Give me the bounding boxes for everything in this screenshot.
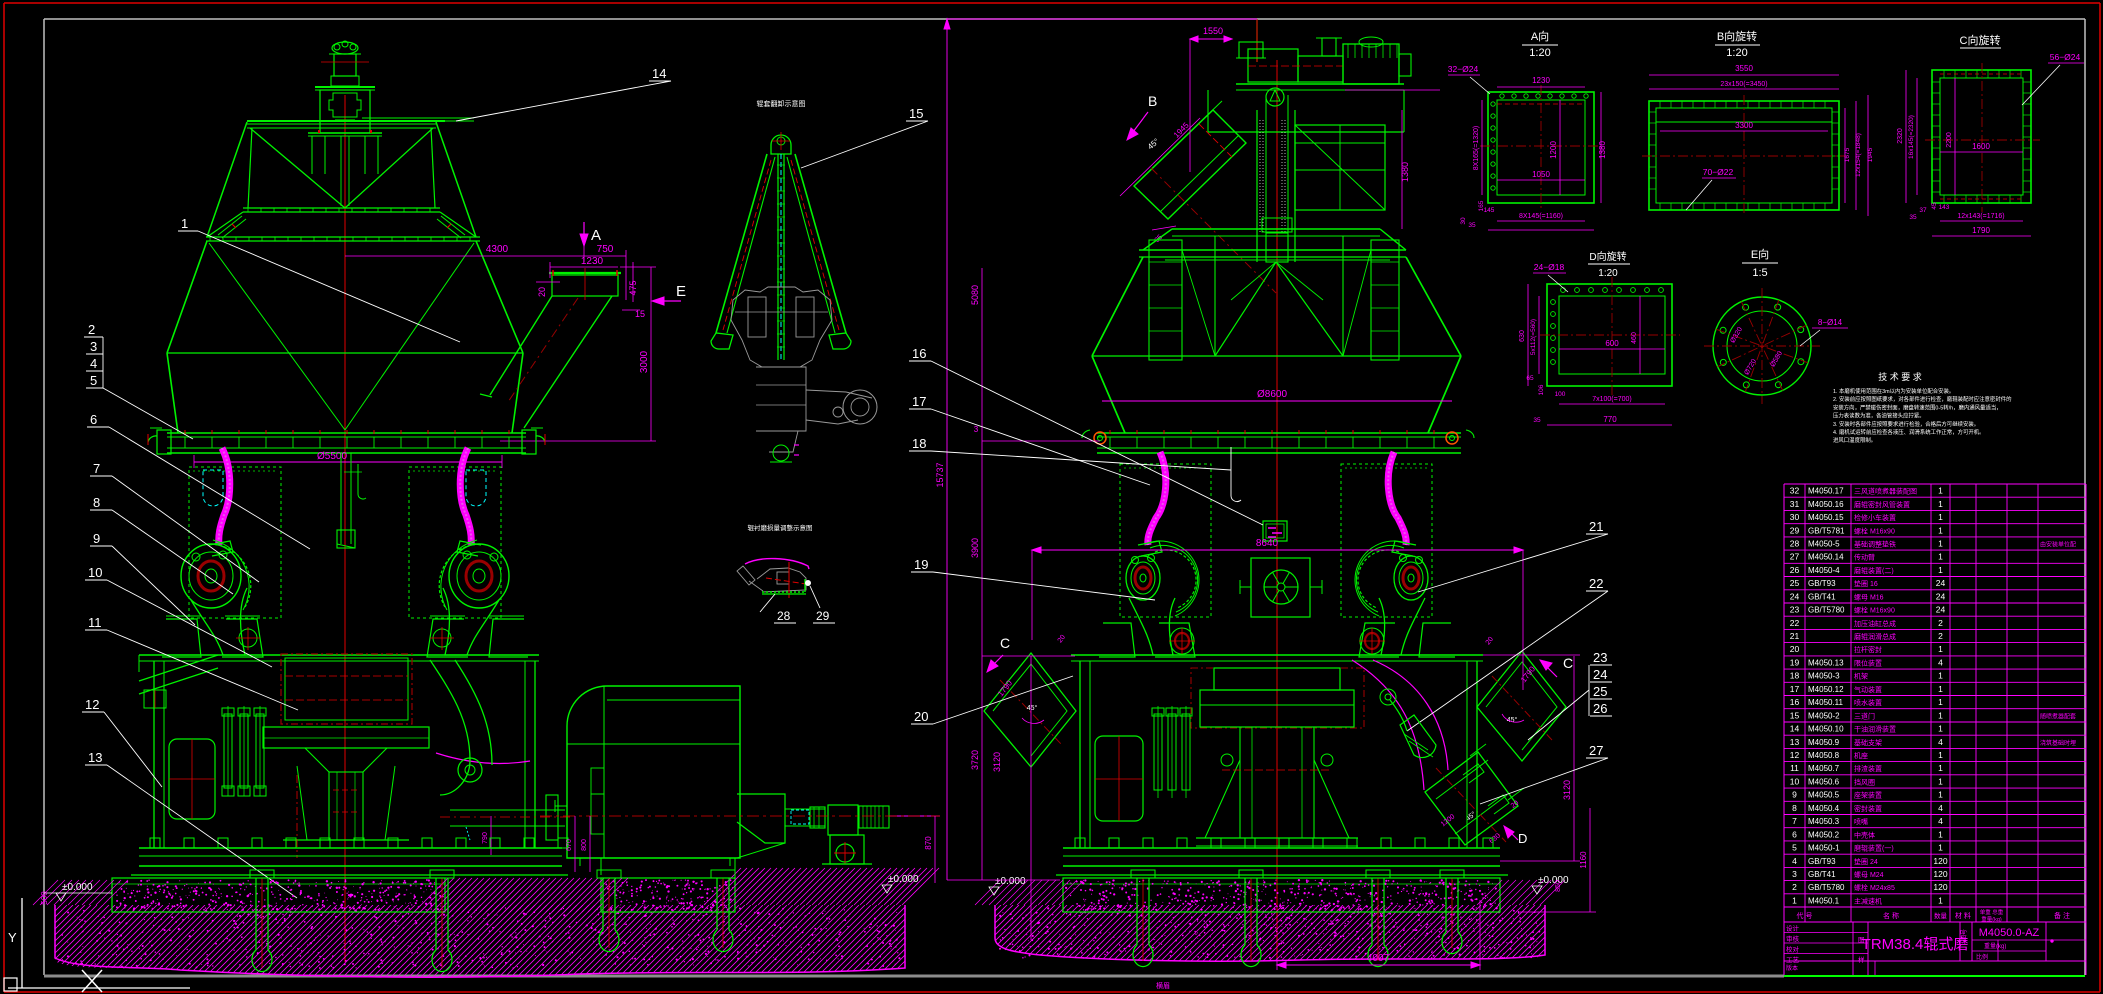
svg-text:20: 20 <box>914 709 928 724</box>
svg-text:拉杆密封: 拉杆密封 <box>1854 645 1882 654</box>
svg-text:45: 45 <box>1931 202 1938 210</box>
svg-text:B向旋转: B向旋转 <box>1717 29 1757 43</box>
svg-text:M4050.12: M4050.12 <box>1808 685 1844 694</box>
svg-text:1: 1 <box>181 216 188 231</box>
svg-text:10: 10 <box>1790 776 1800 786</box>
svg-text:D向旋转: D向旋转 <box>1589 250 1626 263</box>
svg-text:GB/T5780: GB/T5780 <box>1808 606 1845 615</box>
svg-text:磨辊润滑总成: 磨辊润滑总成 <box>1854 632 1896 641</box>
svg-text:24: 24 <box>1936 591 1946 601</box>
svg-text:挡风圈: 挡风圈 <box>1854 777 1875 786</box>
svg-text:3: 3 <box>90 339 97 354</box>
svg-text:4: 4 <box>1938 816 1943 826</box>
svg-text:106: 106 <box>1538 384 1545 395</box>
svg-text:GB/T93: GB/T93 <box>1808 579 1836 588</box>
svg-text:1: 1 <box>1938 486 1943 496</box>
svg-text:M4050.0-AZ: M4050.0-AZ <box>1979 927 2040 939</box>
svg-text:28: 28 <box>777 609 791 623</box>
svg-text:3: 3 <box>974 425 979 434</box>
svg-text:C: C <box>1563 655 1573 671</box>
svg-text:加压油缸总成: 加压油缸总成 <box>1854 619 1896 628</box>
svg-text:8: 8 <box>1792 803 1797 813</box>
svg-text:C: C <box>1000 635 1010 651</box>
svg-text:螺栓 M16x90: 螺栓 M16x90 <box>1854 526 1895 535</box>
svg-text:800: 800 <box>581 839 588 851</box>
svg-text:GB/T5781: GB/T5781 <box>1808 526 1845 535</box>
svg-text:26: 26 <box>1593 701 1607 716</box>
svg-text:3000: 3000 <box>639 350 650 373</box>
svg-text:进风口温度限制。: 进风口温度限制。 <box>1833 436 1876 444</box>
svg-text:4300: 4300 <box>486 244 509 255</box>
svg-text:500: 500 <box>40 891 49 905</box>
svg-text:56−Ø24: 56−Ø24 <box>2050 52 2081 62</box>
svg-text:设计: 设计 <box>1786 924 1800 933</box>
svg-text:23: 23 <box>1790 605 1800 615</box>
svg-text:1380: 1380 <box>1400 162 1410 182</box>
svg-text:30: 30 <box>1790 512 1800 522</box>
svg-text:1: 1 <box>1938 512 1943 522</box>
svg-text:D: D <box>1518 831 1527 846</box>
svg-text:20: 20 <box>537 287 547 297</box>
svg-text:12: 12 <box>85 697 99 712</box>
svg-text:Ø5500: Ø5500 <box>317 451 347 462</box>
svg-text:15: 15 <box>635 309 645 319</box>
svg-text:12x143(=1716): 12x143(=1716) <box>1957 213 2004 220</box>
svg-text:螺栓 M16x90: 螺栓 M16x90 <box>1854 606 1895 615</box>
svg-text:中壳体: 中壳体 <box>1854 830 1875 839</box>
svg-text:35: 35 <box>1468 222 1476 229</box>
svg-text:1790: 1790 <box>1972 226 1990 235</box>
svg-text:喷嘴: 喷嘴 <box>1854 817 1868 826</box>
svg-text:磨辊密封风管装置: 磨辊密封风管装置 <box>1854 500 1910 509</box>
svg-text:143: 143 <box>1939 204 1950 211</box>
svg-text:3120: 3120 <box>992 752 1002 772</box>
svg-text:B: B <box>1148 93 1157 109</box>
svg-text:3: 3 <box>1792 869 1797 879</box>
svg-text:37: 37 <box>1919 207 1927 214</box>
svg-text:代 号: 代 号 <box>1797 911 1813 920</box>
svg-text:3120: 3120 <box>1562 780 1572 800</box>
svg-text:单重 总重: 单重 总重 <box>1980 908 2004 916</box>
svg-text:120: 120 <box>1933 869 1947 879</box>
svg-text:1: 1 <box>1938 499 1943 509</box>
svg-text:2: 2 <box>1938 618 1943 628</box>
svg-text:16: 16 <box>1790 697 1800 707</box>
svg-text:螺栓 M24x85: 螺栓 M24x85 <box>1854 883 1895 892</box>
svg-text:M4050.8: M4050.8 <box>1808 751 1840 760</box>
svg-text:1:5: 1:5 <box>1752 267 1767 279</box>
svg-text:磨辊装置(二): 磨辊装置(二) <box>1854 566 1894 575</box>
svg-text:1: 1 <box>1938 552 1943 562</box>
svg-text:2. 安装前应按照图纸要求，对各部件进行检查，磨辊装配时应注: 2. 安装前应按照图纸要求，对各部件进行检查，磨辊装配时应注意密封件的 <box>1833 395 2012 403</box>
svg-text:1: 1 <box>1938 790 1943 800</box>
svg-text:18: 18 <box>1790 671 1800 681</box>
svg-text:165: 165 <box>1478 200 1485 211</box>
svg-text:5080: 5080 <box>970 285 980 305</box>
svg-text:4: 4 <box>1938 658 1943 668</box>
svg-text:±0.000: ±0.000 <box>995 876 1026 887</box>
svg-text:65: 65 <box>1526 375 1534 382</box>
svg-text:28: 28 <box>1790 539 1800 549</box>
svg-text:1: 1 <box>1938 565 1943 575</box>
svg-text:M4050.15: M4050.15 <box>1808 513 1844 522</box>
svg-text:24: 24 <box>1936 605 1946 615</box>
svg-text:E向: E向 <box>1751 247 1769 261</box>
svg-text:横眉: 横眉 <box>1156 981 1170 990</box>
svg-text:7: 7 <box>93 461 100 476</box>
svg-text:12x154(=1848): 12x154(=1848) <box>1855 133 1862 177</box>
svg-text:1: 1 <box>1938 843 1943 853</box>
svg-text:M4050.11: M4050.11 <box>1808 698 1844 707</box>
svg-text:Ø8600: Ø8600 <box>1257 389 1287 400</box>
svg-text:1:20: 1:20 <box>1726 47 1747 59</box>
svg-text:11: 11 <box>1790 763 1799 773</box>
svg-text:870: 870 <box>924 836 933 850</box>
svg-text:由安装单位配: 由安装单位配 <box>2040 541 2076 549</box>
svg-text:670: 670 <box>566 839 573 851</box>
svg-text:3550: 3550 <box>1735 64 1753 73</box>
svg-text:120: 120 <box>1933 882 1947 892</box>
svg-text:29: 29 <box>1790 525 1800 535</box>
svg-text:32: 32 <box>1790 486 1800 496</box>
svg-text:750: 750 <box>597 244 614 255</box>
svg-text:27: 27 <box>1790 552 1800 562</box>
svg-text:19: 19 <box>914 557 928 572</box>
svg-text:比例: 比例 <box>1976 953 1988 961</box>
svg-text:100: 100 <box>1555 391 1566 398</box>
svg-text:辊套翻卸示意图: 辊套翻卸示意图 <box>757 99 806 108</box>
svg-text:9: 9 <box>93 531 100 546</box>
svg-text:1230: 1230 <box>1532 76 1550 85</box>
svg-text:15: 15 <box>1790 710 1800 720</box>
svg-text:垫圈 24: 垫圈 24 <box>1854 857 1878 866</box>
svg-text:备 注: 备 注 <box>2054 911 2070 920</box>
svg-text:15737: 15737 <box>935 462 945 487</box>
svg-text:21: 21 <box>1589 519 1603 534</box>
svg-text:M4050.17: M4050.17 <box>1808 487 1844 496</box>
svg-text:1945: 1945 <box>1867 147 1874 162</box>
svg-text:M4050.1: M4050.1 <box>1808 896 1840 905</box>
svg-text:1160: 1160 <box>1579 851 1588 869</box>
svg-text:30: 30 <box>1460 217 1467 225</box>
svg-text:1: 1 <box>1938 525 1943 535</box>
svg-text:排渣装置: 排渣装置 <box>1854 764 1882 773</box>
svg-text:25: 25 <box>1593 684 1607 699</box>
svg-text:4. 磨机试运转前应检查各液压、润滑系统工作正常，方可开机。: 4. 磨机试运转前应检查各液压、润滑系统工作正常，方可开机。 <box>1833 428 1985 436</box>
svg-text:工艺: 工艺 <box>1786 956 1800 964</box>
svg-text:1: 1 <box>1938 671 1943 681</box>
svg-text:4: 4 <box>1792 856 1797 866</box>
svg-text:17: 17 <box>912 394 926 409</box>
svg-text:M4050.4: M4050.4 <box>1808 804 1840 813</box>
svg-text:三风道喷煮器装配图: 三风道喷煮器装配图 <box>1854 487 1917 496</box>
svg-text:样: 样 <box>1858 955 1865 964</box>
svg-text:E: E <box>676 283 686 300</box>
svg-text:14: 14 <box>1790 724 1800 734</box>
svg-text:审核: 审核 <box>1786 934 1800 943</box>
svg-text:4: 4 <box>1938 737 1943 747</box>
svg-text:29: 29 <box>816 609 830 623</box>
svg-text:限位装置: 限位装置 <box>1854 659 1882 668</box>
svg-text:M4050-5: M4050-5 <box>1808 540 1840 549</box>
svg-text:1: 1 <box>1938 684 1943 694</box>
svg-text:垫圈 16: 垫圈 16 <box>1854 579 1878 588</box>
svg-text:检修小车装置: 检修小车装置 <box>1854 513 1896 522</box>
svg-text:1: 1 <box>1938 697 1943 707</box>
svg-text:6: 6 <box>90 412 97 427</box>
svg-text:基础支架: 基础支架 <box>1854 738 1882 747</box>
svg-text:45°: 45° <box>1027 704 1038 712</box>
svg-text:M4050.6: M4050.6 <box>1808 777 1840 786</box>
svg-text:1:20: 1:20 <box>1598 268 1618 279</box>
svg-text:辊衬磨损量调整示意图: 辊衬磨损量调整示意图 <box>748 523 813 532</box>
svg-text:M4050.14: M4050.14 <box>1808 553 1844 562</box>
svg-text:M4050.2: M4050.2 <box>1808 830 1840 839</box>
svg-text:基础调整垫铁: 基础调整垫铁 <box>1854 540 1896 549</box>
svg-text:22: 22 <box>1790 618 1800 628</box>
svg-text:4: 4 <box>90 356 97 371</box>
svg-text:1: 1 <box>1938 539 1943 549</box>
svg-text:1: 1 <box>1938 776 1943 786</box>
svg-text:16: 16 <box>912 346 926 361</box>
svg-text:27: 27 <box>1589 743 1603 758</box>
svg-text:13: 13 <box>88 750 102 765</box>
svg-text:8: 8 <box>93 495 100 510</box>
svg-text:2: 2 <box>1938 631 1943 641</box>
svg-text:Y: Y <box>8 930 17 945</box>
svg-text:7: 7 <box>1792 816 1797 826</box>
svg-text:460: 460 <box>1631 332 1638 344</box>
svg-text:TRM38.4辊式磨: TRM38.4辊式磨 <box>1862 936 1969 953</box>
svg-text:13: 13 <box>1790 737 1800 747</box>
svg-text:M4050-2: M4050-2 <box>1808 711 1840 720</box>
svg-text:1: 1 <box>1938 750 1943 760</box>
svg-text:5x112(=560): 5x112(=560) <box>1530 319 1537 355</box>
svg-text:1200: 1200 <box>1549 141 1558 159</box>
svg-text:3900: 3900 <box>970 538 980 558</box>
svg-text:8X165(=1320): 8X165(=1320) <box>1473 126 1480 171</box>
svg-text:GB/T93: GB/T93 <box>1808 857 1836 866</box>
svg-text:传动臂: 传动臂 <box>1854 553 1875 562</box>
svg-text:24−Ø18: 24−Ø18 <box>1534 262 1565 272</box>
svg-text:1: 1 <box>1938 763 1943 773</box>
svg-text:磨辊装置(一): 磨辊装置(一) <box>1854 844 1894 853</box>
svg-text:1. 本磨机使用范围在3m以内为安装单位配合安装。: 1. 本磨机使用范围在3m以内为安装单位配合安装。 <box>1833 387 1954 395</box>
svg-text:A: A <box>591 227 601 244</box>
svg-text:35: 35 <box>1533 417 1541 424</box>
svg-text:1: 1 <box>1938 710 1943 720</box>
svg-text:GB/T41: GB/T41 <box>1808 592 1836 601</box>
svg-text:25: 25 <box>1790 578 1800 588</box>
svg-text:8640: 8640 <box>1256 538 1279 549</box>
svg-text:120: 120 <box>1933 856 1947 866</box>
svg-text:螺母 M24: 螺母 M24 <box>1854 870 1884 879</box>
svg-text:7x100(=700): 7x100(=700) <box>1592 396 1632 403</box>
svg-text:2: 2 <box>1792 882 1797 892</box>
svg-text:770: 770 <box>1603 415 1617 424</box>
svg-text:±0.000: ±0.000 <box>888 874 919 885</box>
svg-text:24: 24 <box>1936 578 1946 588</box>
svg-text:16x145(=2320): 16x145(=2320) <box>1908 115 1915 159</box>
svg-text:26: 26 <box>1790 565 1800 575</box>
svg-text:21: 21 <box>1790 631 1800 641</box>
svg-text:2320: 2320 <box>1897 128 1904 144</box>
svg-text:10: 10 <box>88 565 102 580</box>
svg-text:M4050-3: M4050-3 <box>1808 672 1840 681</box>
svg-text:干油润滑装置: 干油润滑装置 <box>1854 725 1896 734</box>
svg-text:主减速机: 主减速机 <box>1854 896 1882 905</box>
svg-text:4: 4 <box>1938 803 1943 813</box>
svg-text:技 术 要 求: 技 术 要 求 <box>1878 371 1922 382</box>
svg-text:浇筑基础时埋: 浇筑基础时埋 <box>2040 739 2076 747</box>
svg-text:±0.000: ±0.000 <box>62 882 93 893</box>
svg-text:1600: 1600 <box>1972 142 1990 151</box>
svg-text:安装方向，严禁碰伤密封面，磨盘转速范围0-5转/h，磨内通风: 安装方向，严禁碰伤密封面，磨盘转速范围0-5转/h，磨内通风量适当， <box>1833 403 2002 411</box>
svg-text:材 料: 材 料 <box>1955 911 1971 920</box>
svg-text:M4050.3: M4050.3 <box>1808 817 1840 826</box>
svg-text:密封装置: 密封装置 <box>1854 804 1882 813</box>
svg-text:15: 15 <box>909 106 923 121</box>
svg-text:8−Ø14: 8−Ø14 <box>1818 318 1843 327</box>
svg-text:±0.000: ±0.000 <box>1538 875 1569 886</box>
svg-text:M4050.5: M4050.5 <box>1808 791 1840 800</box>
svg-text:GB/T5780: GB/T5780 <box>1808 883 1845 892</box>
svg-text:32−Ø24: 32−Ø24 <box>1448 64 1479 74</box>
svg-text:17: 17 <box>1790 684 1800 694</box>
svg-text:4007: 4007 <box>1367 953 1390 964</box>
svg-text:气动装置: 气动装置 <box>1854 685 1882 694</box>
svg-text:22: 22 <box>1589 576 1603 591</box>
svg-text:1380: 1380 <box>1598 141 1607 159</box>
svg-text:19: 19 <box>1790 658 1800 668</box>
svg-text:压力表读数为准，各油管接头应拧紧。: 压力表读数为准，各油管接头应拧紧。 <box>1833 412 1925 420</box>
svg-text:3300: 3300 <box>1735 121 1753 130</box>
svg-text:1: 1 <box>1938 644 1943 654</box>
svg-text:24: 24 <box>1593 667 1607 682</box>
svg-text:1:20: 1:20 <box>1529 47 1550 59</box>
svg-text:5: 5 <box>90 373 97 388</box>
svg-text:随喷煮器配套: 随喷煮器配套 <box>2040 712 2076 720</box>
svg-text:喷水装置: 喷水装置 <box>1854 698 1882 707</box>
svg-text:70−Ø22: 70−Ø22 <box>1703 167 1734 177</box>
svg-text:600: 600 <box>1605 339 1619 348</box>
svg-text:475: 475 <box>628 280 638 295</box>
svg-text:23x150(=3450): 23x150(=3450) <box>1720 81 1767 88</box>
svg-text:20: 20 <box>1790 644 1800 654</box>
svg-text:145: 145 <box>1484 207 1495 214</box>
svg-text:11: 11 <box>88 615 102 630</box>
svg-text:1675: 1675 <box>1844 147 1851 162</box>
svg-text:重量(kg): 重量(kg) <box>1984 942 2006 950</box>
svg-text:1: 1 <box>1792 895 1797 905</box>
svg-text:M4050-1: M4050-1 <box>1808 844 1840 853</box>
svg-text:31: 31 <box>1790 499 1800 509</box>
svg-text:14: 14 <box>652 66 666 81</box>
svg-text:790: 790 <box>482 832 489 844</box>
svg-text:5: 5 <box>1792 843 1797 853</box>
svg-text:3. 安装时各部件应按照要求进行检验，合格后方可继续安装。: 3. 安装时各部件应按照要求进行检验，合格后方可继续安装。 <box>1833 420 1979 428</box>
svg-text:M4050.13: M4050.13 <box>1808 659 1844 668</box>
svg-text:三道门: 三道门 <box>1854 711 1875 720</box>
svg-text:重量(kg): 重量(kg) <box>1981 915 2002 923</box>
svg-text:1: 1 <box>1938 895 1943 905</box>
svg-text:GB/T41: GB/T41 <box>1808 870 1836 879</box>
svg-text:18: 18 <box>912 436 926 451</box>
svg-text:M4050.7: M4050.7 <box>1808 764 1840 773</box>
svg-text:1: 1 <box>1938 724 1943 734</box>
svg-text:M4050-4: M4050-4 <box>1808 566 1840 575</box>
svg-text:6: 6 <box>1792 829 1797 839</box>
svg-text:2: 2 <box>88 322 95 337</box>
svg-text:12: 12 <box>1790 750 1800 760</box>
svg-text:8X145(=1160): 8X145(=1160) <box>1519 213 1563 220</box>
svg-text:1: 1 <box>1938 829 1943 839</box>
svg-text:座架装置: 座架装置 <box>1854 791 1882 800</box>
svg-text:机座: 机座 <box>1854 751 1868 760</box>
svg-text:35: 35 <box>1909 214 1917 221</box>
svg-text:螺母 M16: 螺母 M16 <box>1854 592 1884 601</box>
svg-text:M4050.16: M4050.16 <box>1808 500 1844 509</box>
svg-text:版本: 版本 <box>1786 964 1798 972</box>
svg-text:A向: A向 <box>1531 29 1549 43</box>
svg-text:2200: 2200 <box>1946 132 1953 148</box>
svg-text:M4050.9: M4050.9 <box>1808 738 1840 747</box>
svg-text:1050: 1050 <box>1532 170 1550 179</box>
svg-text:C向旋转: C向旋转 <box>1960 33 2001 47</box>
svg-text:630: 630 <box>1519 330 1526 342</box>
svg-text:机架: 机架 <box>1854 672 1868 681</box>
svg-text:M4050.10: M4050.10 <box>1808 725 1844 734</box>
svg-text:24: 24 <box>1790 591 1800 601</box>
svg-text:23: 23 <box>1593 650 1607 665</box>
svg-text:校对: 校对 <box>1786 945 1800 954</box>
svg-text:850: 850 <box>1555 880 1562 892</box>
svg-text:9: 9 <box>1792 790 1797 800</box>
svg-text:3720: 3720 <box>970 750 980 770</box>
svg-text:1550: 1550 <box>1203 26 1223 36</box>
svg-text:数量: 数量 <box>1934 911 1948 920</box>
svg-text:名 称: 名 称 <box>1883 911 1899 920</box>
